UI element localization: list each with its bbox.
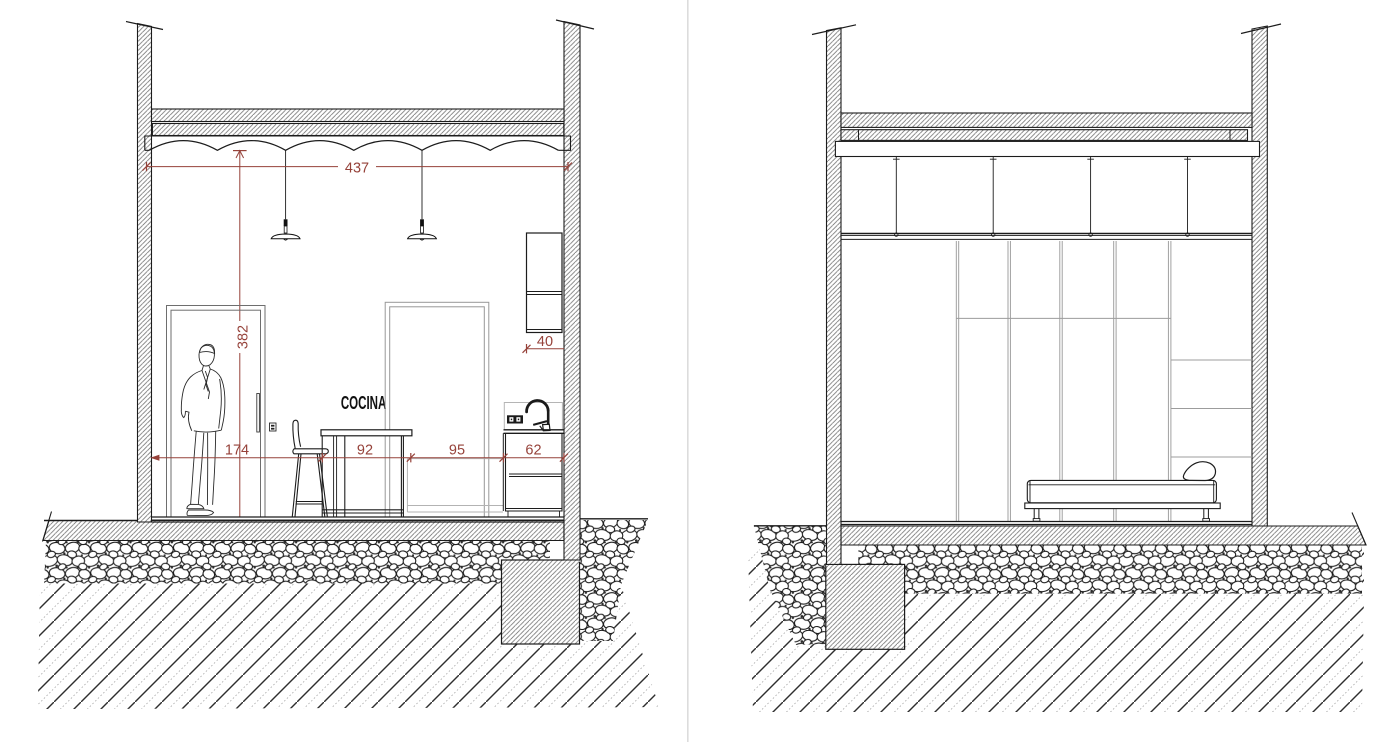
svg-text:382: 382 (235, 325, 251, 349)
svg-text:62: 62 (525, 443, 541, 459)
svg-text:174: 174 (225, 443, 249, 459)
svg-text:COCINA: COCINA (341, 392, 387, 413)
svg-text:437: 437 (345, 161, 369, 177)
svg-text:92: 92 (357, 443, 373, 459)
svg-text:40: 40 (537, 334, 553, 350)
svg-text:95: 95 (449, 443, 465, 459)
